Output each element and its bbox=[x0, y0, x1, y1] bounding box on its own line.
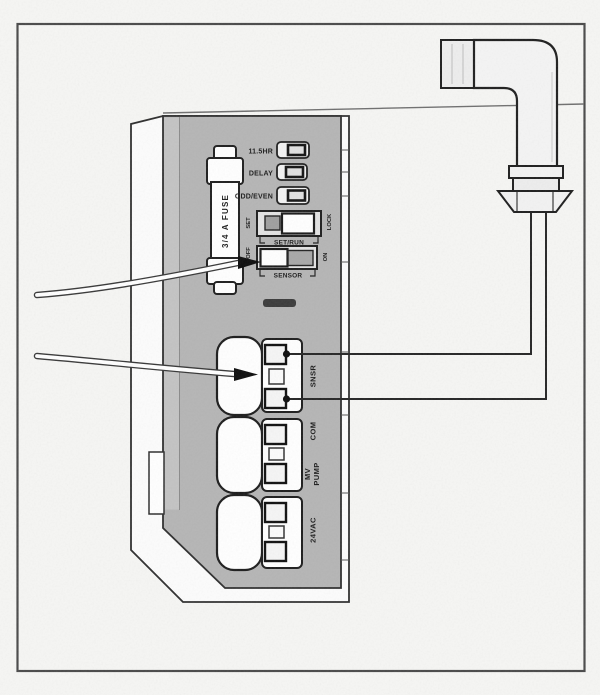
scan-noise-overlay bbox=[0, 0, 600, 695]
wiring-diagram: 3/4 A FUSE 11.5HR DELAY ODD/EVEN SET LOC… bbox=[0, 0, 600, 695]
scanned-manual-page: 3/4 A FUSE 11.5HR DELAY ODD/EVEN SET LOC… bbox=[0, 0, 600, 695]
